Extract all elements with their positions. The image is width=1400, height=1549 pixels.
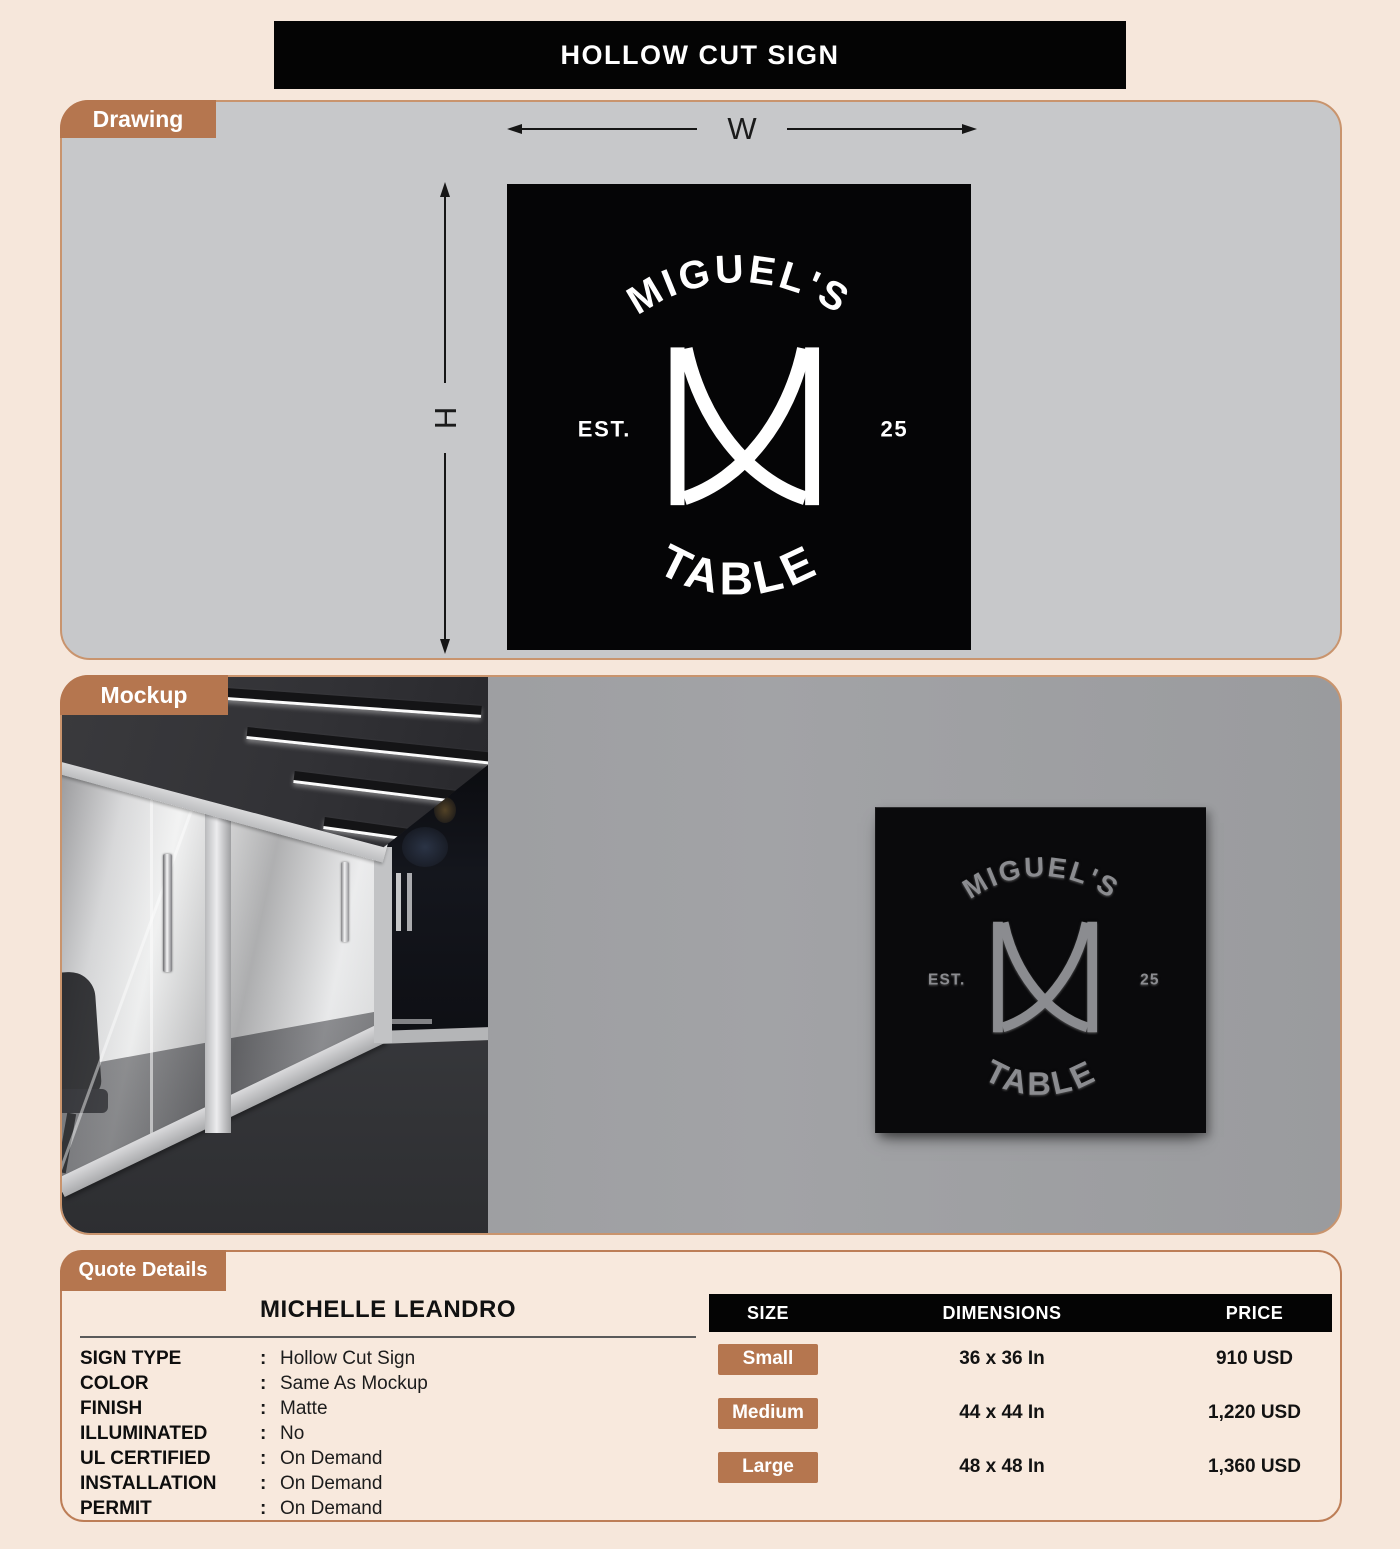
dimensions-value: 48 x 48 In (827, 1456, 1177, 1478)
quote-details-panel: MICHELLE LEANDRO SIGN TYPE : Hollow Cut … (60, 1250, 1342, 1522)
sign-drawing: MIGUEL'STABLEEST.25 (507, 184, 971, 650)
spec-row-illuminated: ILLUMINATED : No (80, 1421, 696, 1446)
arrow-down-icon (440, 639, 450, 654)
glass-frame-post (205, 793, 231, 1133)
spec-label: COLOR (80, 1371, 260, 1396)
door-handle (341, 862, 349, 942)
height-label: H (410, 407, 480, 429)
door-base-strip (392, 1019, 432, 1024)
mockup-panel: MIGUEL'STABLEEST.25 (60, 675, 1342, 1235)
drawing-panel: W H MIGUEL'STABLEEST.25 (60, 100, 1342, 660)
spec-label: UL CERTIFIED (80, 1446, 260, 1471)
spec-row-color: COLOR : Same As Mockup (80, 1371, 696, 1396)
glass-frame-post (374, 847, 392, 1043)
sign-quote-sheet: HOLLOW CUT SIGN W H MIGUEL'STABLEEST.25 … (0, 0, 1400, 1549)
quote-specs: MICHELLE LEANDRO SIGN TYPE : Hollow Cut … (80, 1296, 696, 1521)
sign-logo: MIGUEL'STABLEEST.25 (876, 808, 1206, 1133)
page-title: HOLLOW CUT SIGN (561, 40, 840, 71)
spec-value: On Demand (280, 1471, 382, 1496)
spec-value: No (280, 1421, 304, 1446)
spec-colon: : (260, 1421, 280, 1446)
spec-colon: : (260, 1471, 280, 1496)
pricing-row-medium: Medium 44 x 44 In 1,220 USD (709, 1386, 1332, 1440)
miguels-table-logo: MIGUEL'STABLEEST.25 (876, 808, 1206, 1133)
arrow-right-icon (962, 124, 977, 134)
spec-colon: : (260, 1446, 280, 1471)
logo-arc-top: MIGUEL'S (619, 247, 858, 323)
size-badge: Medium (718, 1398, 818, 1429)
spec-colon: : (260, 1496, 280, 1521)
ceiling-light (246, 727, 488, 765)
logo-arc-top: MIGUEL'S (957, 851, 1125, 905)
sign-logo: MIGUEL'STABLEEST.25 (507, 184, 971, 650)
price-value: 1,360 USD (1177, 1456, 1332, 1478)
spec-colon: : (260, 1396, 280, 1421)
spec-label: INSTALLATION (80, 1471, 260, 1496)
customer-name: MICHELLE LEANDRO (80, 1296, 696, 1324)
logo-year: 25 (880, 417, 908, 442)
spec-row-sign-type: SIGN TYPE : Hollow Cut Sign (80, 1346, 696, 1371)
spec-value: Hollow Cut Sign (280, 1346, 415, 1371)
spec-label: ILLUMINATED (80, 1421, 260, 1446)
dimensions-value: 44 x 44 In (827, 1402, 1177, 1424)
monogram-m-icon (993, 922, 1097, 1033)
logo-arc-bottom: TABLE (980, 1053, 1103, 1102)
logo-year: 25 (1140, 971, 1160, 988)
title-bar: HOLLOW CUT SIGN (274, 21, 1126, 89)
column-dimensions: DIMENSIONS (827, 1303, 1177, 1324)
logo-arc-bottom: TABLE (651, 534, 826, 605)
spec-label: PERMIT (80, 1496, 260, 1521)
logo-est: EST. (578, 417, 632, 442)
logo-est: EST. (928, 971, 965, 988)
divider (80, 1336, 696, 1338)
monogram-m-icon (671, 347, 819, 505)
glass-door-edge (150, 777, 153, 1152)
spec-label: SIGN TYPE (80, 1346, 260, 1371)
spec-row-ul-certified: UL CERTIFIED : On Demand (80, 1446, 696, 1471)
spec-colon: : (260, 1371, 280, 1396)
spec-label: FINISH (80, 1396, 260, 1421)
width-label: W (697, 112, 786, 146)
office-photo (62, 677, 488, 1235)
pricing-row-large: Large 48 x 48 In 1,360 USD (709, 1440, 1332, 1494)
spec-value: On Demand (280, 1446, 382, 1471)
door-handle (407, 873, 412, 931)
spec-value: On Demand (280, 1496, 382, 1521)
mockup-tab: Mockup (60, 675, 228, 715)
ceiling-light (212, 687, 482, 718)
spec-colon: : (260, 1346, 280, 1371)
dimension-line (522, 128, 697, 130)
column-price: PRICE (1177, 1303, 1332, 1324)
pricing-row-small: Small 36 x 36 In 910 USD (709, 1332, 1332, 1386)
arrow-up-icon (440, 182, 450, 197)
glass-reflection (402, 827, 448, 867)
dimension-line (444, 197, 446, 383)
miguels-table-logo: MIGUEL'STABLEEST.25 (507, 184, 971, 650)
door-handle (396, 873, 401, 931)
pricing-table-header: SIZE DIMENSIONS PRICE (709, 1294, 1332, 1332)
price-value: 910 USD (1177, 1348, 1332, 1370)
spec-row-installation: INSTALLATION : On Demand (80, 1471, 696, 1496)
size-badge: Small (718, 1344, 818, 1375)
dimension-line (787, 128, 962, 130)
spec-row-permit: PERMIT : On Demand (80, 1496, 696, 1521)
sign-mockup: MIGUEL'STABLEEST.25 (875, 807, 1206, 1133)
dimensions-value: 36 x 36 In (827, 1348, 1177, 1370)
arrow-left-icon (507, 124, 522, 134)
height-dimension: H (428, 182, 462, 654)
width-dimension: W (507, 112, 977, 146)
door-handle (163, 854, 172, 972)
dimension-line (444, 453, 446, 639)
size-badge: Large (718, 1452, 818, 1483)
spec-value: Matte (280, 1396, 328, 1421)
pricing-table: SIZE DIMENSIONS PRICE Small 36 x 36 In 9… (709, 1294, 1332, 1494)
drawing-tab: Drawing (60, 100, 216, 138)
spec-row-finish: FINISH : Matte (80, 1396, 696, 1421)
quote-details-tab: Quote Details (60, 1250, 226, 1291)
column-size: SIZE (709, 1303, 827, 1324)
price-value: 1,220 USD (1177, 1402, 1332, 1424)
spec-value: Same As Mockup (280, 1371, 428, 1396)
